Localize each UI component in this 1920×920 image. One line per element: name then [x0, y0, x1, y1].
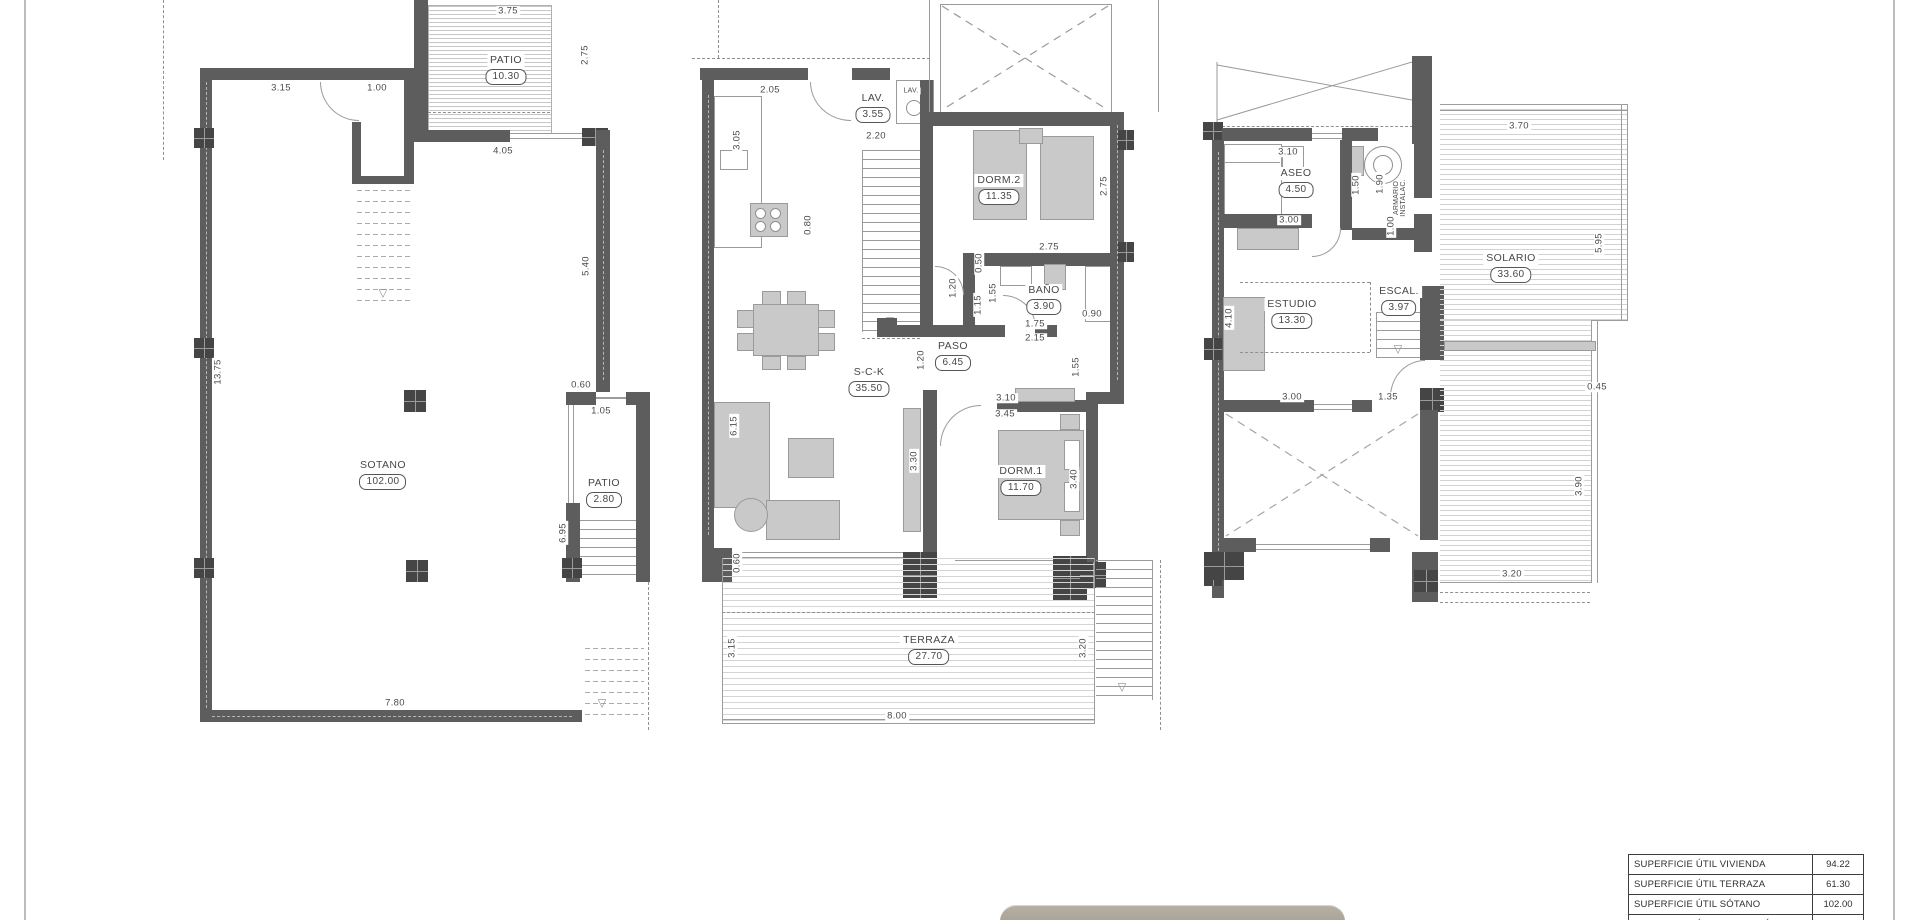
solario-deck — [1440, 104, 1628, 320]
roof-slope-lines — [1205, 50, 1445, 135]
room-label-escal: ESCAL. 3.97 — [1376, 285, 1422, 316]
wall-centerline — [206, 82, 207, 708]
column — [194, 338, 214, 358]
column — [406, 560, 428, 582]
room-label-sotano: SOTANO 102.00 — [357, 459, 409, 490]
window — [1314, 404, 1352, 410]
table-row: SUPERFICIE ÚTIL VIVIENDA 94.22 — [1629, 855, 1863, 875]
wall — [852, 68, 890, 80]
stair-arrow-icon: ▽ — [379, 289, 387, 300]
room-label-estudio: ESTUDIO 13.30 — [1264, 298, 1319, 329]
wall-centerline — [212, 716, 572, 717]
wall — [1352, 400, 1372, 412]
wall — [414, 130, 510, 142]
chair — [818, 310, 835, 328]
room-label-dorm1: DORM.1 11.70 — [996, 465, 1045, 496]
wall — [1086, 392, 1124, 404]
dimension-label: 5.40 — [581, 254, 591, 278]
column — [404, 390, 426, 412]
builder-stamp — [1000, 905, 1345, 920]
nightstand — [1060, 520, 1080, 536]
dimension-label: 3.15 — [269, 83, 293, 93]
furniture-dashed-outline — [1240, 352, 1370, 353]
wall — [352, 176, 414, 184]
dimension-label: 3.40 — [1069, 467, 1079, 491]
door-arc — [320, 82, 359, 121]
dimension-label: 2.75 — [1037, 242, 1061, 252]
room-label-dorm2: DORM.2 11.35 — [974, 174, 1023, 205]
line — [596, 397, 628, 399]
wall — [1086, 404, 1098, 562]
void-x-marker — [940, 4, 1110, 112]
line — [1224, 162, 1280, 163]
line — [1440, 110, 1628, 111]
column — [1203, 122, 1223, 140]
dimension-label: 4.05 — [491, 146, 515, 156]
column — [1414, 570, 1438, 592]
door-arc — [1312, 228, 1341, 257]
section-dashed-line — [862, 338, 920, 339]
door-arc — [940, 405, 981, 446]
chair — [762, 356, 781, 370]
dimension-label: 3.10 — [994, 393, 1018, 403]
burner-icon — [770, 221, 781, 232]
window — [1312, 133, 1342, 139]
nightstand — [1019, 128, 1043, 144]
dimension-label: 1.55 — [988, 281, 998, 305]
room-label-lav: LAV. 3.55 — [855, 92, 890, 123]
dimension-label: 6.95 — [558, 521, 568, 545]
line — [1621, 104, 1622, 320]
wall — [1370, 538, 1390, 552]
line — [929, 0, 930, 112]
table-row: SUPERFICIE ÚTIL TERRAZA 61.30 — [1629, 875, 1863, 895]
closet — [1015, 388, 1075, 402]
area-summary-table: SUPERFICIE ÚTIL VIVIENDA 94.22 SUPERFICI… — [1628, 854, 1864, 920]
furniture-dashed-outline — [1240, 282, 1370, 283]
line — [1597, 320, 1598, 583]
dimension-label: 3.10 — [1276, 147, 1300, 157]
line — [1152, 560, 1153, 700]
column — [562, 558, 582, 578]
column — [1204, 552, 1244, 580]
line — [1440, 582, 1592, 583]
wall — [1414, 214, 1432, 252]
room-label-lav-small: LAV. — [902, 88, 921, 95]
stair-arrow-icon: ▽ — [598, 699, 606, 710]
column — [1118, 130, 1134, 150]
burner-icon — [770, 208, 781, 219]
dimension-label: 1.90 — [1375, 172, 1385, 196]
stairs-hidden — [582, 648, 644, 724]
page-border-left — [24, 0, 26, 920]
line — [1094, 558, 1095, 724]
dimension-label: 3.00 — [1277, 215, 1301, 225]
dimension-label: 3.75 — [496, 6, 520, 16]
dimension-label: 1.35 — [1376, 392, 1400, 402]
chair — [762, 291, 781, 305]
chair — [787, 356, 806, 370]
dimension-label: 2.75 — [580, 43, 590, 67]
stairs — [580, 520, 636, 580]
sofa — [766, 500, 840, 540]
column — [1204, 338, 1222, 360]
cabinet — [1237, 228, 1299, 250]
dimension-label: 7.80 — [383, 698, 407, 708]
wall — [1412, 56, 1432, 144]
chair — [737, 310, 754, 328]
boundary-dashed-line — [692, 58, 930, 59]
solario-deck — [1440, 320, 1592, 583]
page-border-right — [1893, 0, 1895, 920]
line — [1627, 104, 1628, 320]
dimension-label: 1.15 — [973, 293, 983, 317]
nightstand — [1060, 414, 1080, 430]
bathroom-sink — [1000, 266, 1032, 286]
dimension-label: 3.90 — [1574, 474, 1584, 498]
dimension-label: 1.20 — [948, 276, 958, 300]
dimension-label: 3.05 — [732, 128, 742, 152]
kitchen-sink — [720, 150, 748, 170]
dimension-label: 2.15 — [1023, 333, 1047, 343]
room-label-terraza: TERRAZA 27.70 — [900, 634, 958, 665]
wall — [200, 68, 414, 80]
line — [862, 150, 863, 332]
wall — [928, 112, 1124, 126]
stairs — [1096, 560, 1152, 700]
wall — [636, 405, 650, 582]
dining-table — [753, 304, 819, 356]
dimension-label: 3.15 — [727, 636, 737, 660]
wall — [1222, 128, 1312, 141]
burner-icon — [755, 221, 766, 232]
cooktop — [750, 203, 788, 237]
dimension-label: 3.45 — [993, 409, 1017, 419]
table-row: SUPERFICIE ÚTIL SÓTANO 102.00 — [1629, 895, 1863, 915]
dimension-label: 3.20 — [1078, 636, 1088, 660]
table-row: SUPERFICIE ÚTIL PATIOS SÓTANO 13.10 — [1629, 915, 1863, 920]
wall — [566, 392, 596, 405]
room-label-solario: SOLARIO 33.60 — [1483, 252, 1538, 283]
room-label-patio1: PATIO 10.30 — [485, 54, 526, 85]
dimension-label: 1.50 — [1351, 173, 1361, 197]
room-label-armario: ARMARIO INSTALAC. — [1393, 179, 1407, 216]
window — [568, 405, 574, 503]
room-label-aseo: ASEO 4.50 — [1278, 167, 1315, 198]
wall — [700, 68, 808, 80]
sliding-door — [1256, 544, 1370, 550]
dimension-label: 2.20 — [864, 131, 888, 141]
wall-centerline — [603, 150, 604, 380]
dimension-label: 1.00 — [1386, 214, 1396, 238]
column — [1118, 242, 1134, 262]
dimension-label: 0.60 — [732, 551, 742, 575]
wall-centerline — [708, 95, 709, 535]
dimension-label: 1.05 — [589, 406, 613, 416]
stairs-hidden — [354, 190, 412, 302]
line — [1440, 104, 1628, 105]
line — [722, 723, 1095, 724]
dimension-label: 8.00 — [885, 711, 909, 721]
boundary-dashed-line — [163, 0, 164, 160]
wall — [404, 80, 414, 184]
dimension-label: 0.45 — [1585, 382, 1609, 392]
room-label-sck: S-C-K 35.50 — [848, 366, 889, 397]
bed — [1040, 136, 1094, 220]
dimension-label: 4.10 — [1224, 306, 1234, 330]
dimension-label: 3.20 — [1500, 569, 1524, 579]
pillow — [1064, 440, 1080, 470]
wall — [626, 392, 650, 405]
dimension-label: 3.30 — [909, 449, 919, 473]
shower — [1224, 144, 1282, 218]
boundary-dashed-line — [1217, 126, 1413, 127]
wall — [923, 390, 937, 560]
dimension-label: 1.20 — [916, 348, 926, 372]
room-label-patio2: PATIO 2.80 — [585, 477, 623, 508]
dimension-label: 0.60 — [569, 380, 593, 390]
dimension-label: 3.00 — [1280, 392, 1304, 402]
wall — [352, 122, 361, 184]
dimension-label: 1.00 — [365, 83, 389, 93]
coffee-table — [788, 438, 834, 478]
dimension-label: 0.50 — [974, 251, 984, 275]
section-dashed-line — [428, 112, 550, 113]
dimension-label: 6.15 — [729, 414, 739, 438]
floorplan-sheet: ▽ ▽ PATIO 10.30 — [0, 0, 1920, 920]
boundary-dashed-line — [1440, 592, 1590, 593]
wall — [414, 0, 428, 132]
dimension-label: 2.75 — [1099, 174, 1109, 198]
wall — [963, 253, 1110, 266]
column — [194, 558, 214, 578]
furniture-dashed-outline — [1370, 282, 1371, 352]
pouf — [734, 498, 768, 532]
room-label-paso: PASO 6.45 — [935, 340, 971, 371]
boundary-dashed-line — [718, 0, 719, 58]
boundary-dashed-line — [1440, 602, 1590, 603]
room-label-bano: BAÑO 3.90 — [1025, 284, 1062, 315]
dimension-label: 5.95 — [1594, 231, 1604, 255]
line — [1376, 312, 1377, 358]
wall — [1420, 410, 1438, 540]
dimension-label: 0.80 — [803, 213, 813, 237]
boundary-dashed-line — [722, 612, 1095, 613]
door-arc — [810, 82, 851, 121]
line — [1158, 0, 1159, 112]
dimension-label: 2.05 — [758, 85, 782, 95]
wall — [1222, 538, 1256, 552]
wall — [877, 325, 1005, 337]
wall-centerline — [1218, 152, 1219, 586]
line — [722, 558, 723, 724]
line — [1591, 320, 1592, 583]
bench — [1444, 341, 1596, 351]
dimension-label: 0.90 — [1080, 309, 1104, 319]
stair-arrow-icon: ▽ — [1118, 683, 1126, 694]
boundary-dashed-line — [1160, 560, 1161, 730]
stairs — [862, 150, 920, 332]
railing — [510, 133, 584, 139]
boundary-dashed-line — [648, 582, 649, 730]
dimension-label: 1.75 — [1023, 319, 1047, 329]
sofa — [714, 402, 770, 508]
chair — [818, 333, 835, 351]
column — [194, 128, 214, 148]
burner-icon — [755, 208, 766, 219]
dimension-label: 1.55 — [1071, 355, 1081, 379]
wall — [1352, 228, 1414, 240]
dimension-label: 13.75 — [213, 357, 223, 386]
wall — [1414, 140, 1432, 198]
void-x-marker — [1224, 412, 1420, 538]
chair — [787, 291, 806, 305]
dimension-label: 3.70 — [1507, 121, 1531, 131]
stair-arrow-icon: ▽ — [1394, 345, 1402, 356]
chair — [737, 333, 754, 351]
